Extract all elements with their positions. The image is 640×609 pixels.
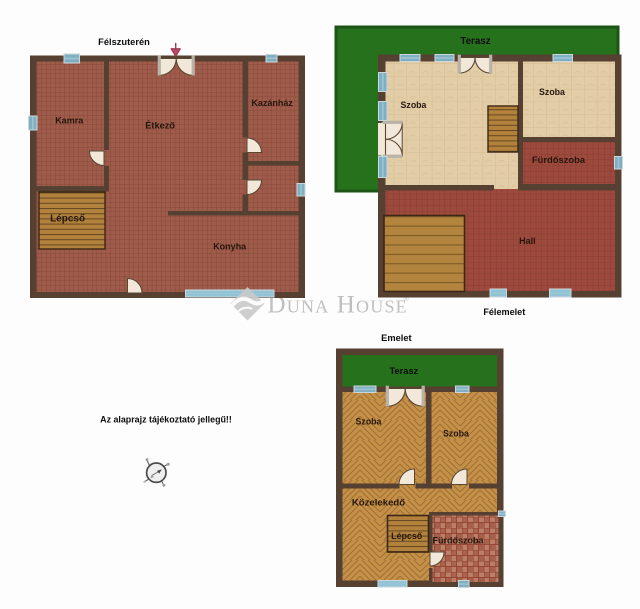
- svg-text:Fürdőszoba: Fürdőszoba: [433, 536, 485, 546]
- svg-text:Szoba: Szoba: [539, 87, 565, 97]
- svg-text:Félemelet: Félemelet: [483, 307, 525, 317]
- svg-text:Szoba: Szoba: [401, 100, 427, 110]
- svg-text:Emelet: Emelet: [381, 333, 412, 343]
- svg-text:Lépcső: Lépcső: [391, 531, 423, 541]
- svg-text:Étkező: Étkező: [145, 120, 175, 131]
- svg-text:Szoba: Szoba: [443, 429, 469, 439]
- svg-text:Szoba: Szoba: [356, 417, 382, 427]
- svg-text:Kazánház: Kazánház: [251, 98, 293, 108]
- svg-text:Félszuterén: Félszuterén: [98, 37, 150, 47]
- svg-text:Terasz: Terasz: [390, 366, 419, 376]
- svg-text:Az alaprajz tájékoztató jelleg: Az alaprajz tájékoztató jellegű!!: [100, 414, 232, 424]
- svg-text:Fürdőszoba: Fürdőszoba: [532, 154, 586, 165]
- svg-text:Közelekedő: Közelekedő: [352, 498, 405, 509]
- svg-text:Terasz: Terasz: [460, 36, 490, 47]
- svg-text:Hall: Hall: [519, 236, 536, 246]
- svg-text:Konyha: Konyha: [213, 241, 247, 251]
- svg-text:Kamra: Kamra: [55, 115, 84, 125]
- svg-text:Lépcső: Lépcső: [50, 213, 85, 224]
